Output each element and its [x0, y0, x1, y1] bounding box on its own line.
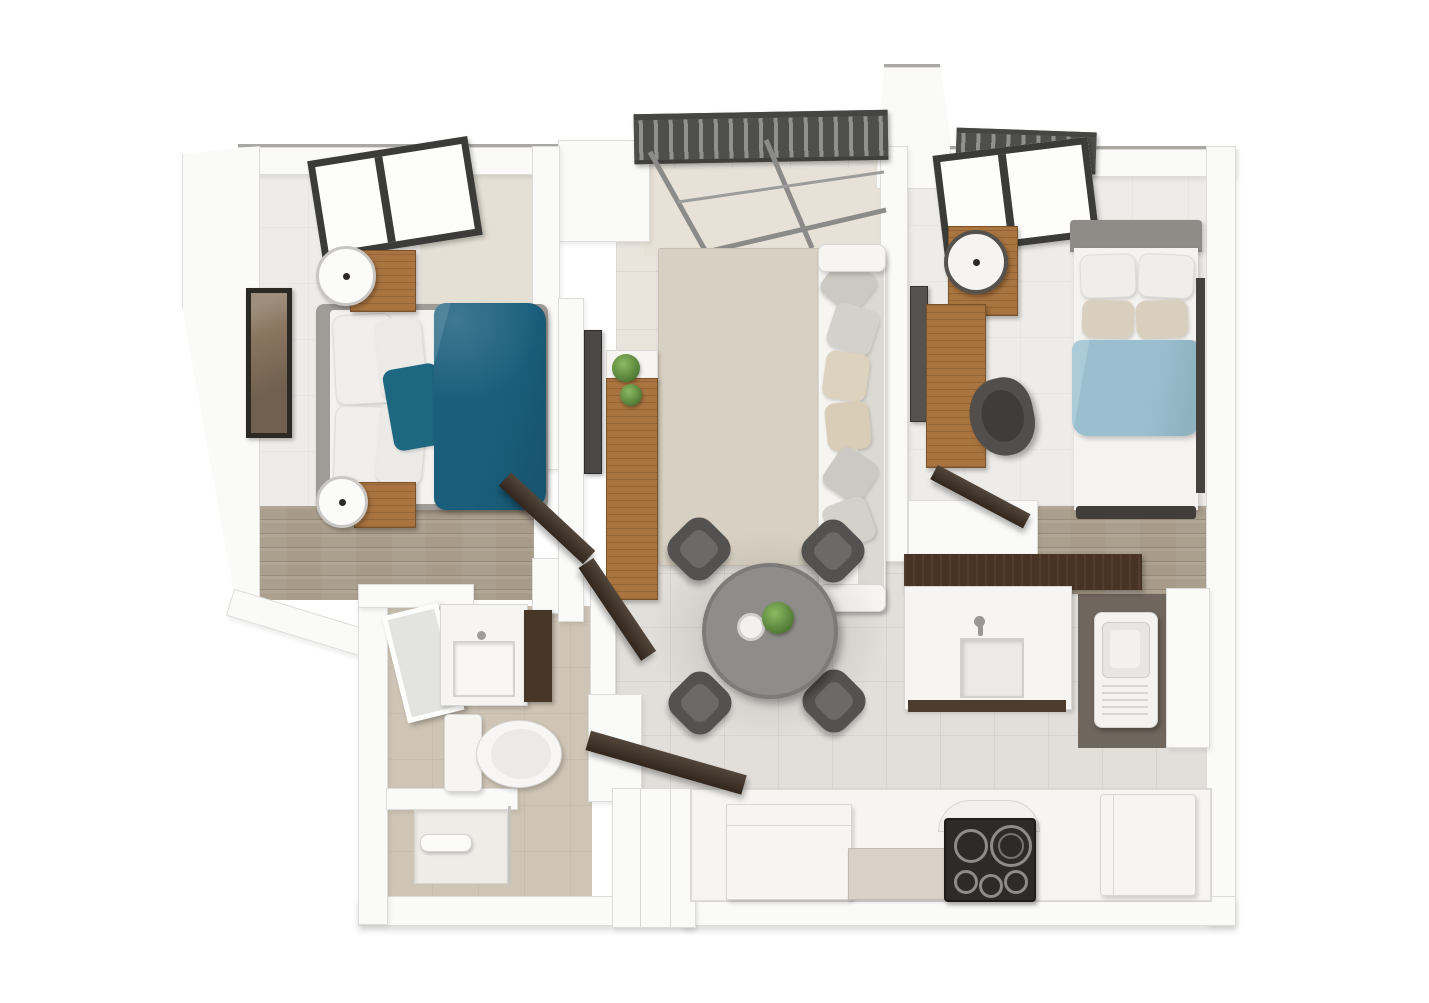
balcony-glazing-lines: [0, 0, 1429, 1003]
floor-plan: [0, 0, 1429, 1003]
